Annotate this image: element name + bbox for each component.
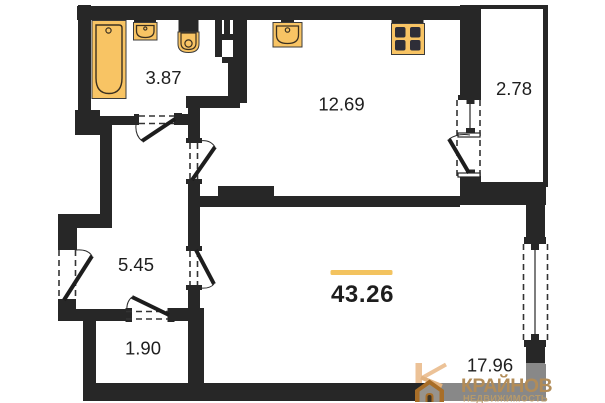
svg-text:17.96: 17.96 xyxy=(467,355,513,376)
svg-text:НЕДВИЖИМОСТЬ: НЕДВИЖИМОСТЬ xyxy=(463,394,548,403)
svg-text:12.69: 12.69 xyxy=(318,94,364,115)
svg-text:1.90: 1.90 xyxy=(125,338,161,359)
svg-text:2.78: 2.78 xyxy=(496,78,532,99)
svg-text:3.87: 3.87 xyxy=(145,67,181,88)
svg-text:43.26: 43.26 xyxy=(331,281,394,308)
svg-text:5.45: 5.45 xyxy=(118,254,154,275)
